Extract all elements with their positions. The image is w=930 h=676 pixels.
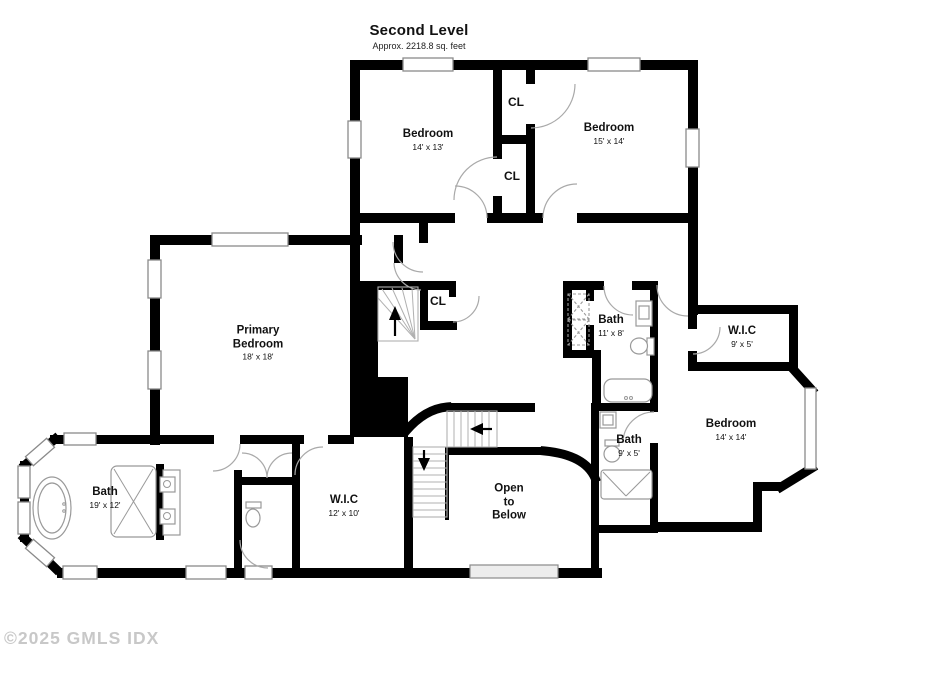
chimney-chase (352, 285, 378, 381)
sink (160, 477, 175, 492)
wall (292, 435, 300, 570)
stair-down-arrow-head (418, 458, 430, 471)
wall (586, 325, 594, 358)
wall (591, 525, 658, 533)
wall (526, 124, 535, 144)
door-arc (657, 285, 688, 316)
wall (688, 60, 698, 315)
page-title: Second Level (369, 22, 468, 39)
door-arc (531, 84, 575, 128)
window (148, 260, 161, 298)
door-arc (693, 327, 720, 354)
shower-pan (601, 470, 652, 499)
bay-wall (781, 468, 812, 487)
stair-left-arrow-head (470, 423, 483, 435)
wall (328, 435, 354, 444)
chimney-chase (352, 377, 408, 437)
door-arc (623, 412, 654, 443)
open-below-railing (470, 565, 558, 578)
watermark: ©2025 GMLS IDX (4, 628, 159, 649)
window (805, 388, 816, 469)
wall (234, 477, 300, 485)
stair-up-arrow-head (389, 306, 401, 320)
door-arc (267, 453, 292, 478)
bay-wall (793, 369, 812, 390)
wall (493, 196, 502, 223)
sink-basin (639, 306, 649, 319)
window (148, 351, 161, 389)
door-arc (242, 453, 267, 478)
window (64, 433, 96, 445)
toilet-bowl (246, 509, 260, 527)
sink-basin (603, 415, 613, 425)
window (403, 58, 453, 71)
door-arc (543, 184, 577, 218)
wall (688, 305, 697, 329)
wall (577, 213, 698, 223)
wall (526, 144, 535, 223)
wall (526, 70, 535, 84)
page-subtitle: Approx. 2218.8 sq. feet (369, 41, 468, 51)
door-arc (240, 540, 268, 568)
wall (688, 362, 798, 371)
door-arc (604, 286, 633, 315)
wall (419, 213, 428, 243)
sink (160, 509, 175, 524)
door-arc (213, 444, 240, 471)
toilet-tank (246, 502, 261, 508)
wall (688, 305, 798, 314)
window (212, 233, 288, 246)
toilet-tank (605, 440, 619, 446)
freestanding-tub-inner (38, 483, 66, 533)
wall (447, 447, 547, 455)
wall (350, 60, 698, 70)
wall (591, 403, 658, 411)
window (18, 502, 30, 534)
wall (753, 487, 762, 532)
floorplan-canvas: Second Level Approx. 2218.8 sq. feet Bed… (0, 0, 930, 676)
curved-wall (545, 451, 595, 478)
wall (586, 281, 594, 301)
window (686, 129, 699, 167)
window (18, 466, 30, 498)
wall (493, 70, 502, 140)
wall (789, 305, 798, 371)
wall (650, 522, 762, 532)
window (25, 539, 54, 566)
stair-tread (382, 289, 415, 339)
floorplan-svg (0, 0, 930, 676)
door-arc (455, 186, 487, 218)
window (186, 566, 226, 579)
door-arc (453, 296, 479, 322)
window (348, 121, 361, 158)
plan-title-block: Second Level Approx. 2218.8 sq. feet (369, 22, 468, 51)
bathtub (604, 379, 652, 402)
window (63, 566, 97, 579)
window (25, 438, 54, 465)
wall (350, 213, 455, 223)
toilet-bowl (604, 446, 620, 462)
wall (591, 403, 599, 577)
wall (404, 437, 413, 568)
wall (449, 281, 456, 297)
wall (592, 350, 601, 411)
wall (420, 321, 457, 330)
toilet-bowl (631, 338, 648, 354)
window (588, 58, 640, 71)
curved-wall (406, 407, 447, 431)
fixtures (33, 294, 654, 539)
